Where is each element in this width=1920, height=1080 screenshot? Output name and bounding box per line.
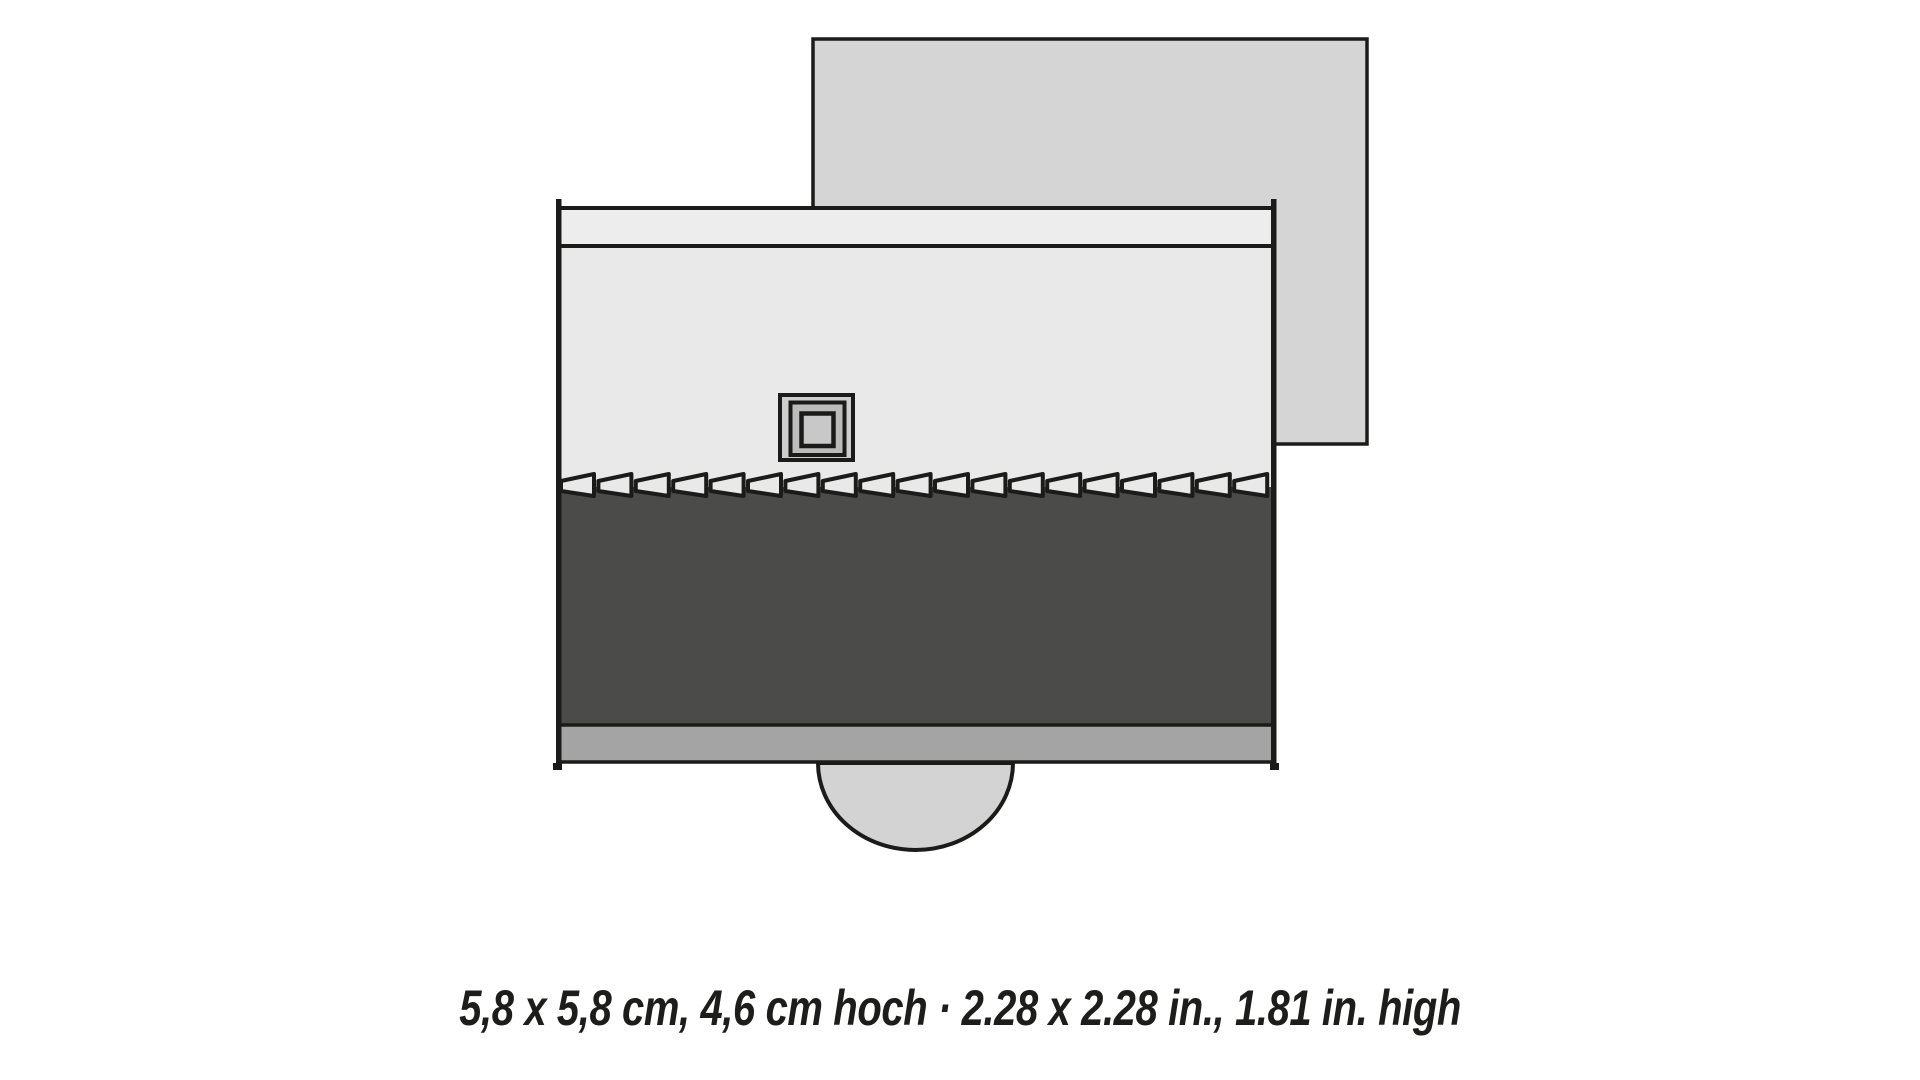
dimensions-caption: 5,8 x 5,8 cm, 4,6 cm hoch · 2.28 x 2.28 …: [459, 979, 1461, 1037]
left-wall-edge: [553, 199, 562, 770]
roof-ridge-band: [559, 208, 1273, 246]
page: 5,8 x 5,8 cm, 4,6 cm hoch · 2.28 x 2.28 …: [0, 0, 1920, 1080]
product-diagram: [0, 0, 1920, 1080]
chimney: [780, 395, 853, 460]
dark-roof-section: [559, 487, 1273, 725]
caption-row: 5,8 x 5,8 cm, 4,6 cm hoch · 2.28 x 2.28 …: [0, 979, 1920, 1037]
arch-semicircle: [818, 763, 1013, 850]
roof-surface: [559, 206, 1273, 489]
chimney-inner-square: [802, 414, 834, 447]
base-strip: [559, 725, 1273, 762]
